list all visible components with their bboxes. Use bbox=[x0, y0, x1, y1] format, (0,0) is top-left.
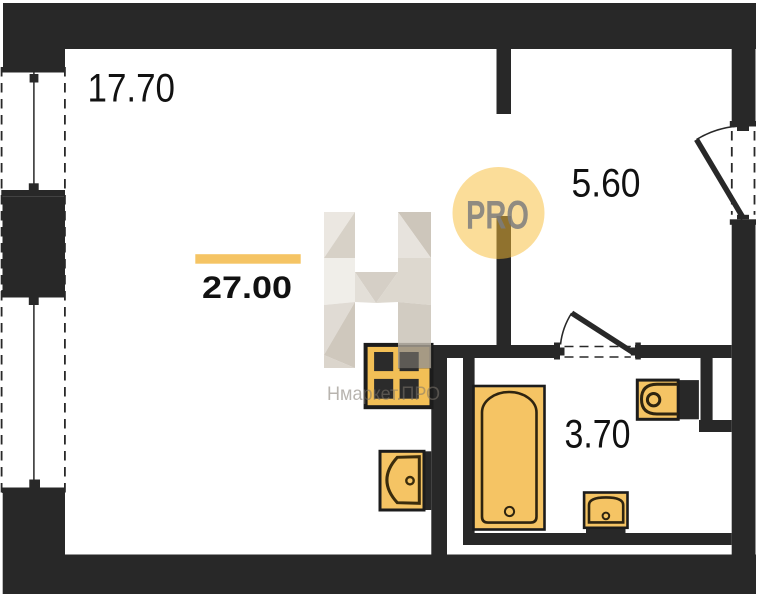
svg-text:17.70: 17.70 bbox=[88, 67, 176, 111]
svg-text:3.70: 3.70 bbox=[565, 413, 631, 457]
svg-text:27.00: 27.00 bbox=[202, 269, 292, 305]
svg-text:Нмаркет.ПРО: Нмаркет.ПРО bbox=[327, 383, 440, 405]
svg-text:PRO: PRO bbox=[466, 193, 529, 237]
svg-text:5.60: 5.60 bbox=[572, 162, 641, 206]
